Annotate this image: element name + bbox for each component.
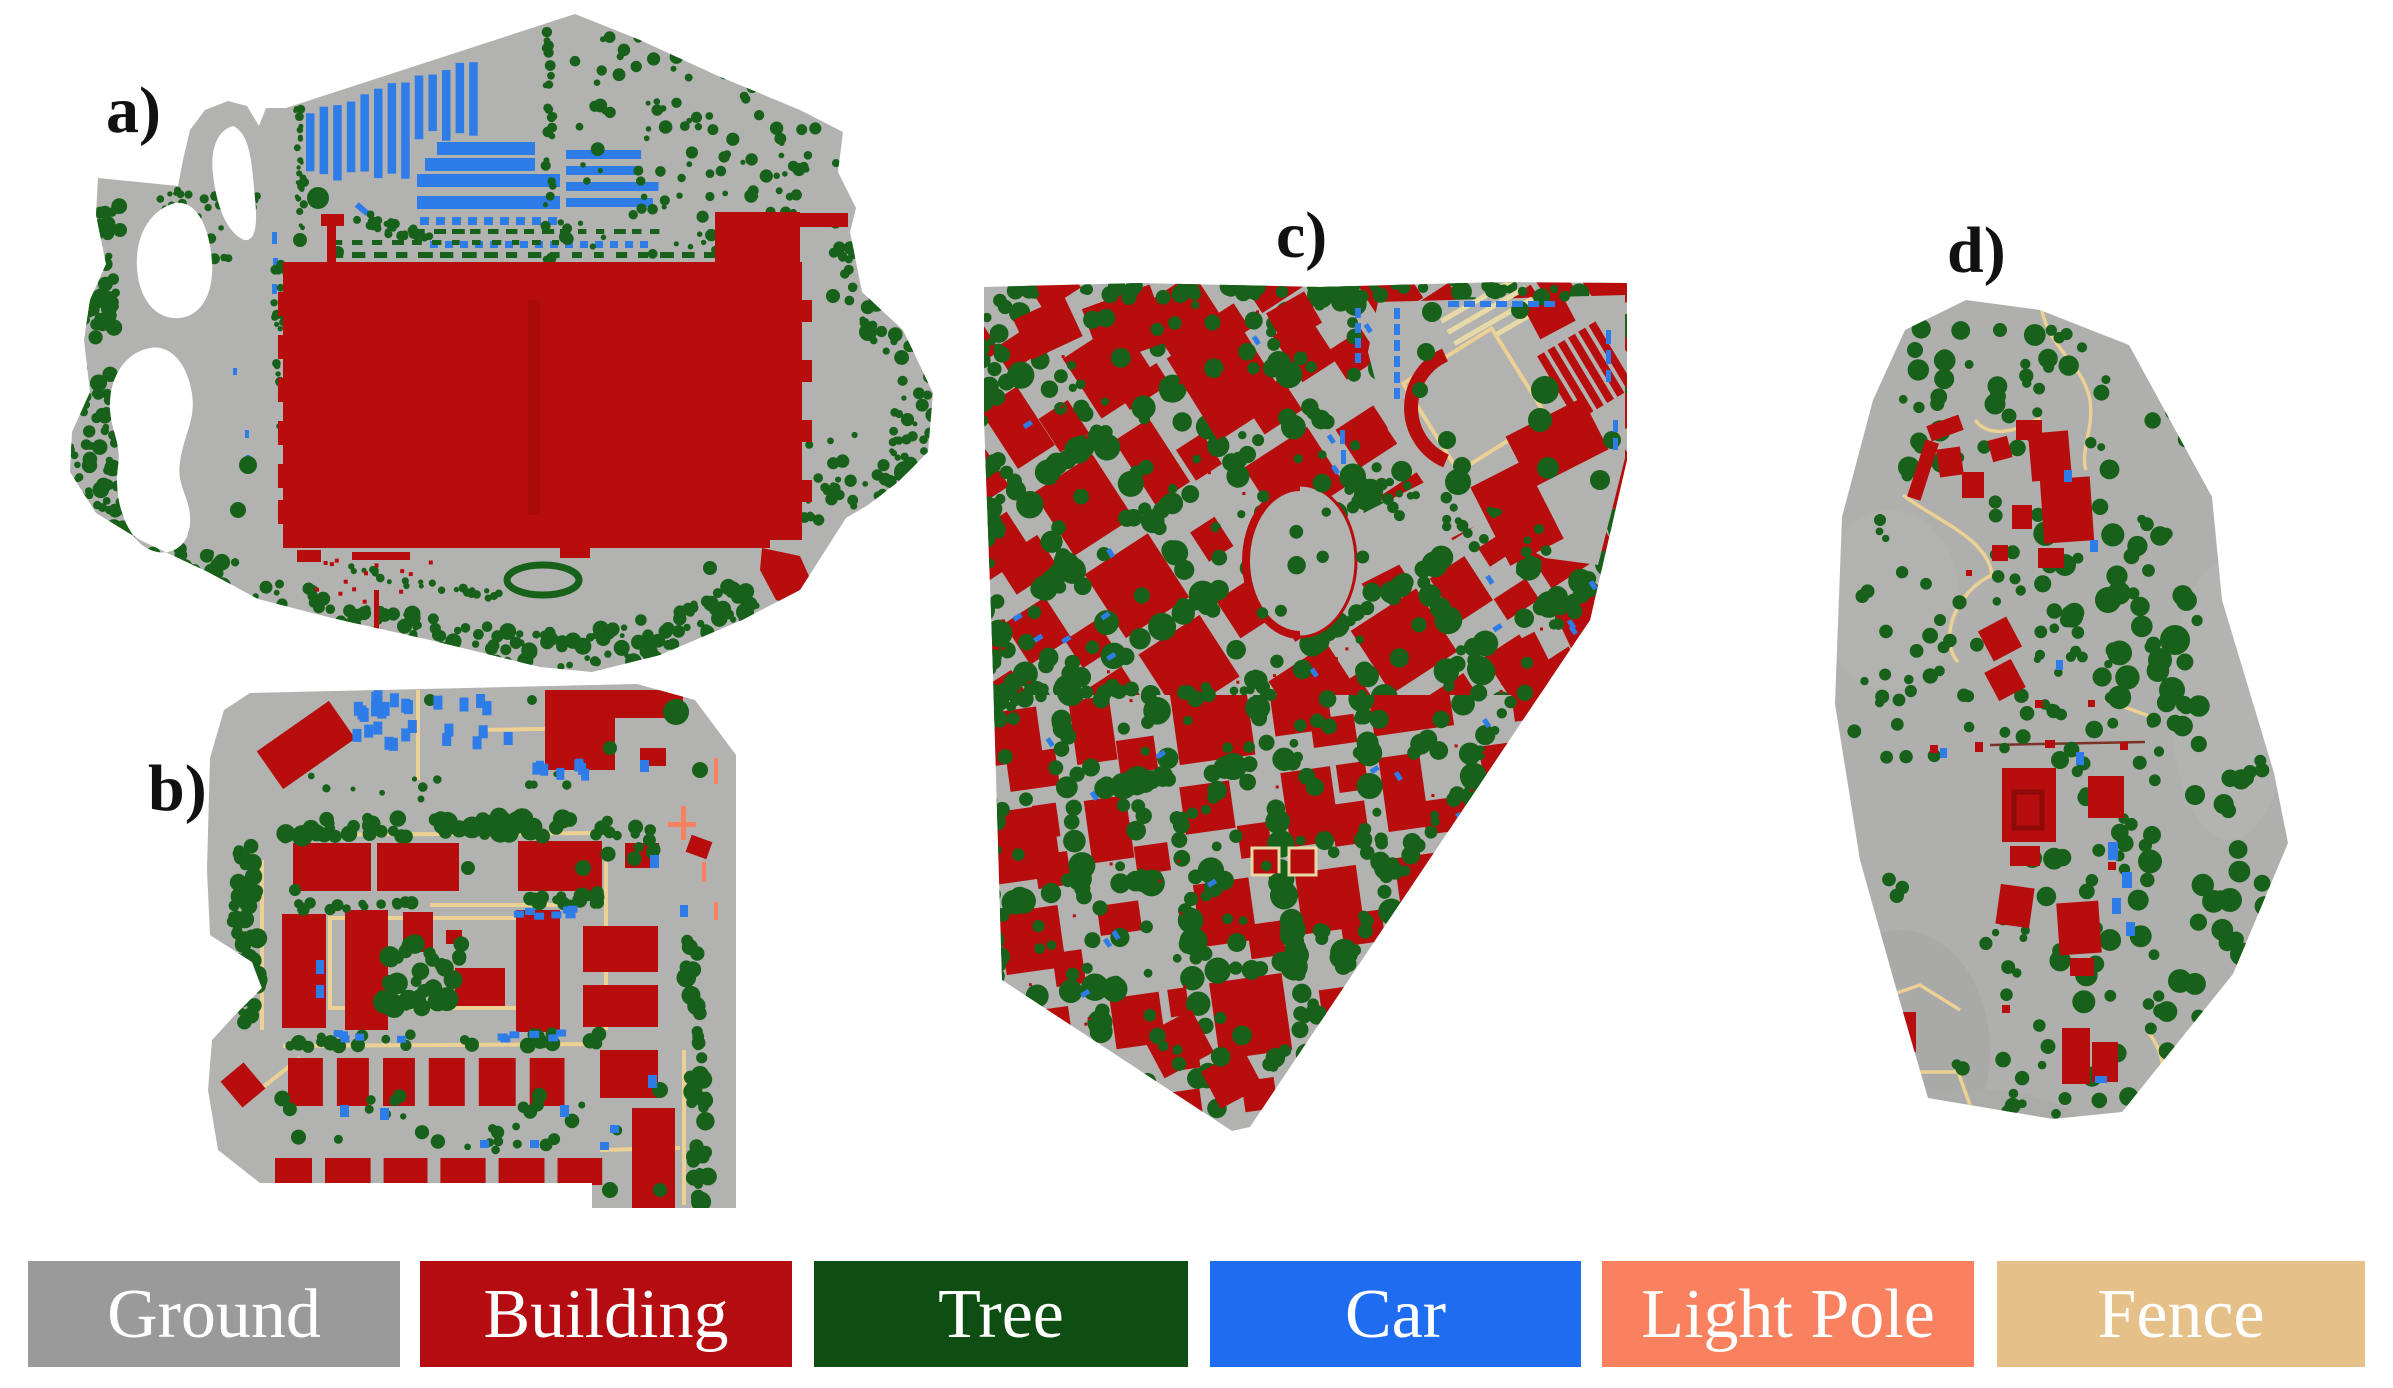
svg-text:a): a) — [106, 74, 161, 147]
svg-text:b): b) — [148, 752, 207, 825]
